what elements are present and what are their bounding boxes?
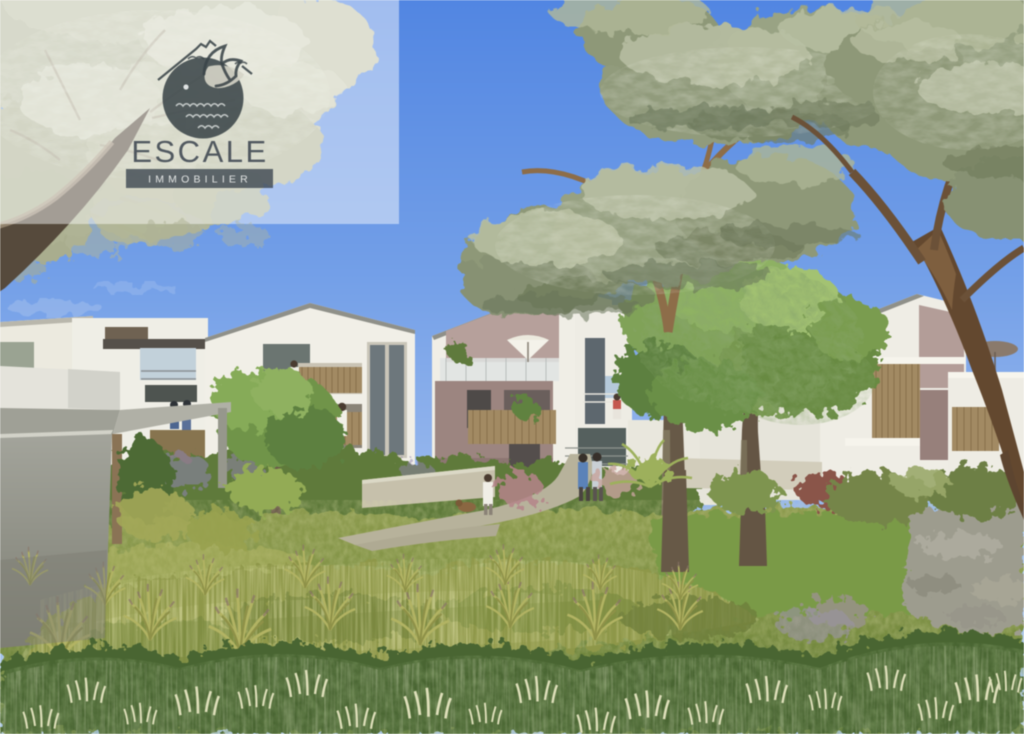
- svg-text:IMMOBILIER: IMMOBILIER: [148, 174, 252, 186]
- svg-text:ESCALE: ESCALE: [131, 134, 268, 169]
